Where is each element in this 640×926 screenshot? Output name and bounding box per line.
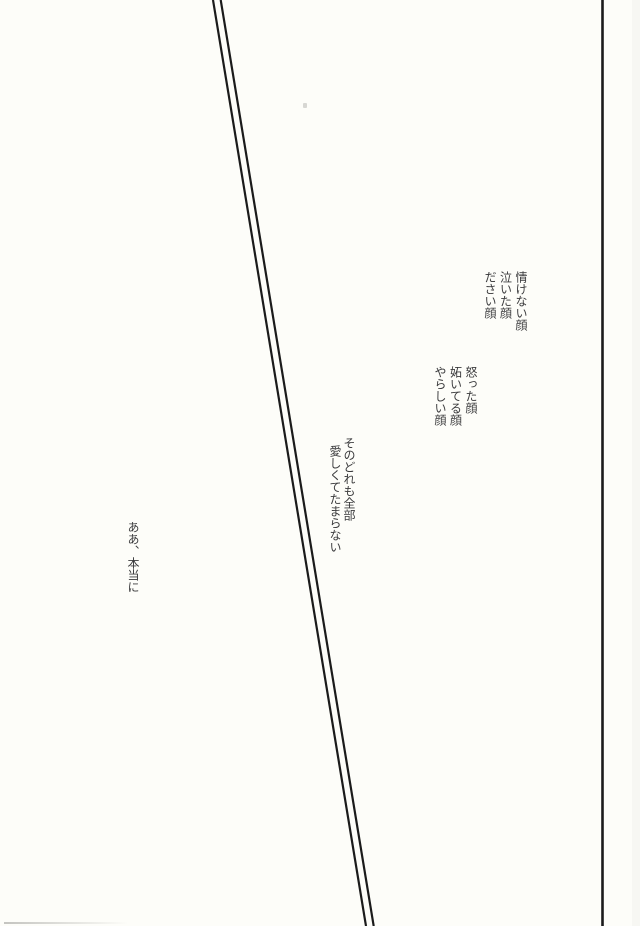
scan-bottom-edge-shade: [4, 922, 128, 924]
text-line-naita-kao: 泣いた顔: [497, 271, 513, 331]
text-line-yaiteru-kao: 妬いてる顔: [447, 366, 463, 426]
text-line-yarashii-kao: やらしい顔: [432, 366, 448, 426]
text-line-sono-doremo-zenbu: そのどれも全部: [342, 437, 356, 553]
text-line-dasai-kao: ださい顔: [482, 271, 498, 331]
text-block-sigh: ああ、本当に: [125, 521, 140, 593]
text-block-confession: そのどれも全部 愛しくてたまらない: [328, 437, 356, 553]
text-line-okotta-kao: 怒った顔: [463, 366, 479, 426]
text-block-emotive-faces: 怒った顔 妬いてる顔 やらしい顔: [432, 366, 479, 426]
scan-right-edge-shade: [632, 0, 640, 926]
text-line-aa-hontouni: ああ、本当に: [125, 521, 140, 593]
text-line-itoshikute-tamaranai: 愛しくてたまらない: [328, 437, 342, 553]
text-block-plain-faces: 情けない顔 泣いた顔 ださい顔: [482, 271, 529, 331]
text-line-nasakenai-kao: 情けない顔: [513, 271, 529, 331]
scanned-page: 情けない顔 泣いた顔 ださい顔 怒った顔 妬いてる顔 やらしい顔 そのどれも全部…: [0, 0, 640, 926]
scan-speck: [303, 103, 307, 108]
page-rules: [0, 0, 640, 926]
